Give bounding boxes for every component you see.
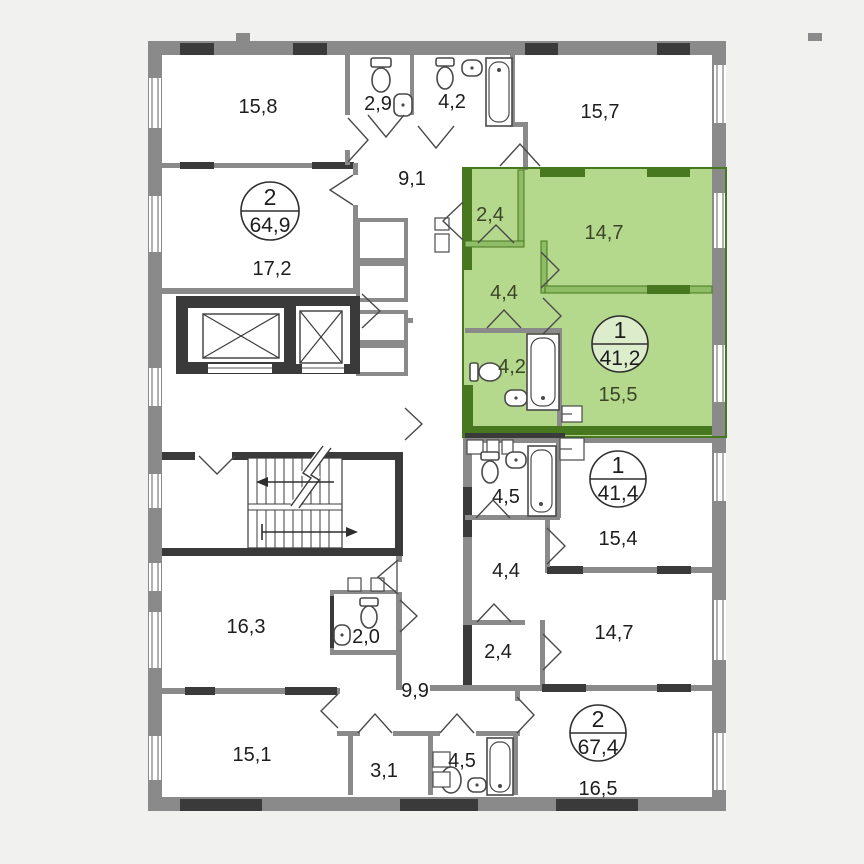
sink-icon xyxy=(394,94,412,116)
toilet-icon xyxy=(371,58,391,92)
room-area-label: 14,7 xyxy=(585,222,624,244)
room-area-label: 15,5 xyxy=(599,384,638,406)
unit-total-area: 41,2 xyxy=(600,347,641,370)
room-area-label: 9,1 xyxy=(398,168,426,190)
toilet-icon xyxy=(470,363,501,381)
unit-badge-41-4: 1 41,4 xyxy=(590,451,646,507)
room-area-label: 4,4 xyxy=(492,560,520,582)
unit-total-area: 67,4 xyxy=(578,736,619,759)
bathtub-icon xyxy=(528,446,556,516)
unit-badge-64-9: 2 64,9 xyxy=(241,182,299,240)
room-area-label: 17,2 xyxy=(253,258,292,280)
sink-icon xyxy=(334,625,350,645)
room-area-label: 2,4 xyxy=(484,641,512,663)
room-area-label: 16,3 xyxy=(227,616,266,638)
sink-icon xyxy=(462,60,482,76)
room-area-label: 2,4 xyxy=(476,204,504,226)
toilet-icon xyxy=(481,452,499,483)
unit-badge-67-4: 2 67,4 xyxy=(570,705,626,761)
bathtub-icon xyxy=(487,738,513,795)
unit-total-area: 41,4 xyxy=(598,482,639,505)
toilet-icon xyxy=(436,58,454,89)
room-area-label: 4,2 xyxy=(498,356,526,378)
room-area-label: 9,9 xyxy=(401,680,429,702)
unit-rooms-count: 1 xyxy=(614,317,627,343)
room-area-label: 3,1 xyxy=(370,760,398,782)
unit-badge-41-2[interactable]: 1 41,2 xyxy=(592,316,648,372)
room-area-label: 4,5 xyxy=(492,486,520,508)
unit-rooms-count: 1 xyxy=(612,452,625,478)
sink-icon xyxy=(468,778,486,792)
room-area-label: 4,2 xyxy=(438,91,466,113)
floor-plan: 15,8 2,9 4,2 15,7 9,1 17,2 2,4 14,7 4,4 … xyxy=(0,0,864,864)
room-area-label: 14,7 xyxy=(595,622,634,644)
room-area-label: 2,9 xyxy=(364,93,392,115)
unit-total-area: 64,9 xyxy=(250,214,291,237)
sink-icon xyxy=(506,452,526,468)
unit-rooms-count: 2 xyxy=(592,706,605,732)
elevator-shafts xyxy=(176,296,360,374)
room-area-label: 4,5 xyxy=(448,750,476,772)
room-area-label: 15,1 xyxy=(233,744,272,766)
sink-icon xyxy=(505,390,527,406)
room-area-label: 16,5 xyxy=(579,778,618,800)
floor-plan-drawing: 15,8 2,9 4,2 15,7 9,1 17,2 2,4 14,7 4,4 … xyxy=(0,0,864,864)
bathtub-icon xyxy=(527,334,559,410)
bathtub-icon xyxy=(486,58,512,126)
unit-rooms-count: 2 xyxy=(264,184,277,210)
room-area-label: 2,0 xyxy=(352,626,380,648)
toilet-icon xyxy=(360,598,378,628)
staircase xyxy=(248,446,358,548)
room-area-label: 15,7 xyxy=(581,101,620,123)
room-area-label: 15,8 xyxy=(239,96,278,118)
room-area-label: 15,4 xyxy=(599,528,638,550)
room-area-label: 4,4 xyxy=(490,282,518,304)
